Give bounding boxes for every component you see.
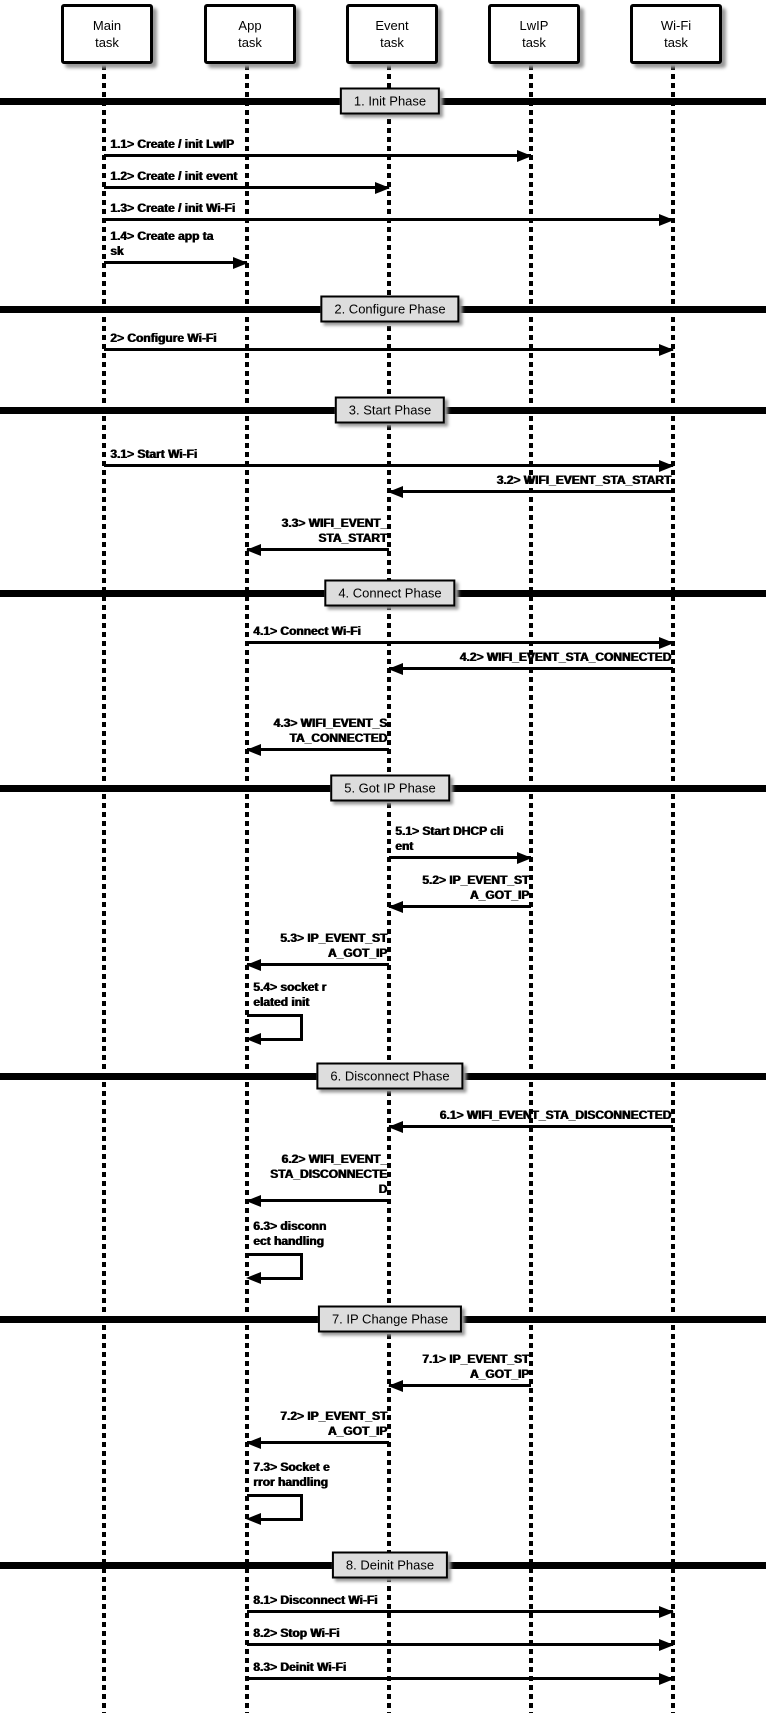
sequence-diagram: 1.1> Create / init LwIP 1.2> Create / in…	[0, 0, 768, 1713]
self-loop-line	[260, 1518, 303, 1521]
message-label: 1.3> Create / init Wi-Fi	[110, 201, 235, 216]
arrowhead-right-icon	[659, 460, 674, 472]
arrow-line	[104, 348, 673, 351]
phase-label-text: 7. IP Change Phase	[332, 1312, 448, 1327]
arrowhead-left-icon	[246, 1437, 261, 1449]
arrow-line	[104, 464, 673, 467]
message-label: 1.4> Create app ta sk	[110, 229, 213, 259]
message-label-line: STA_START	[281, 531, 387, 546]
phase-label-ip-change: 7. IP Change Phase	[318, 1306, 462, 1333]
message-3-2: 3.2> WIFI_EVENT_STA_START	[389, 490, 673, 493]
message-label: 5.2> IP_EVENT_ST A_GOT_IP	[422, 873, 529, 903]
arrowhead-left-icon	[246, 1272, 261, 1284]
arrowhead-left-icon	[388, 1380, 403, 1392]
phase-label-init: 1. Init Phase	[340, 88, 440, 115]
message-label-line: 4.3> WIFI_EVENT_S	[273, 716, 387, 731]
participant-name-line: App	[238, 17, 261, 34]
phase-label-configure: 2. Configure Phase	[320, 296, 459, 323]
participant-event-task: Event task	[346, 4, 438, 64]
message-label: 4.2> WIFI_EVENT_STA_CONNECTED	[460, 650, 672, 665]
message-6-3: 6.3> disconn ect handling	[247, 1253, 303, 1280]
participant-name-line: LwIP	[520, 17, 549, 34]
message-label-line: 1.1> Create / init LwIP	[110, 137, 234, 152]
phase-label-text: 2. Configure Phase	[334, 302, 445, 317]
arrow-line	[389, 490, 673, 493]
message-label-line: ect handling	[253, 1234, 326, 1249]
self-loop-line	[300, 1014, 303, 1041]
message-label-line: 2> Configure Wi-Fi	[110, 331, 216, 346]
arrowhead-left-icon	[246, 1195, 261, 1207]
arrow-line	[104, 261, 247, 264]
message-label-line: 5.2> IP_EVENT_ST	[422, 873, 529, 888]
message-4-2: 4.2> WIFI_EVENT_STA_CONNECTED	[389, 667, 673, 670]
arrowhead-right-icon	[233, 257, 248, 269]
message-6-2: 6.2> WIFI_EVENT_ STA_DISCONNECTE D	[247, 1199, 389, 1202]
message-4-3: 4.3> WIFI_EVENT_S TA_CONNECTED	[247, 748, 389, 751]
arrow-line	[104, 154, 531, 157]
participant-lwip-task: LwIP task	[488, 4, 580, 64]
message-label-line: A_GOT_IP	[280, 1424, 387, 1439]
lifeline-app-task	[245, 56, 249, 1713]
lifeline-lwip-task	[529, 56, 533, 1713]
phase-label-text: 5. Got IP Phase	[344, 781, 436, 796]
arrowhead-right-icon	[659, 214, 674, 226]
message-label-line: 5.4> socket r	[253, 980, 326, 995]
message-label: 8.2> Stop Wi-Fi	[253, 1626, 339, 1641]
participant-name-line: Wi-Fi	[661, 17, 691, 34]
phase-label-text: 6. Disconnect Phase	[330, 1069, 449, 1084]
arrowhead-left-icon	[246, 744, 261, 756]
message-1-3: 1.3> Create / init Wi-Fi	[104, 218, 673, 221]
message-label-line: 7.1> IP_EVENT_ST	[422, 1352, 529, 1367]
phase-label-text: 1. Init Phase	[354, 94, 426, 109]
self-loop-line	[260, 1038, 303, 1041]
message-label-line: 7.2> IP_EVENT_ST	[280, 1409, 387, 1424]
phase-label-deinit: 8. Deinit Phase	[332, 1552, 448, 1579]
message-4-1: 4.1> Connect Wi-Fi	[247, 641, 673, 644]
participant-name-line: Main	[93, 17, 121, 34]
message-label-line: 6.2> WIFI_EVENT_	[270, 1152, 387, 1167]
message-7-1: 7.1> IP_EVENT_ST A_GOT_IP	[389, 1384, 531, 1387]
arrow-line	[104, 218, 673, 221]
participant-main-task: Main task	[61, 4, 153, 64]
message-1-4: 1.4> Create app ta sk	[104, 261, 247, 264]
arrowhead-right-icon	[375, 182, 390, 194]
message-5-1: 5.1> Start DHCP cli ent	[389, 856, 531, 859]
message-5-3: 5.3> IP_EVENT_ST A_GOT_IP	[247, 963, 389, 966]
participant-name-line: task	[238, 34, 262, 51]
message-label-line: A_GOT_IP	[422, 1367, 529, 1382]
arrow-line	[247, 963, 389, 966]
message-label-line: 8.1> Disconnect Wi-Fi	[253, 1593, 377, 1608]
message-label-line: 1.2> Create / init event	[110, 169, 237, 184]
arrow-line	[247, 641, 673, 644]
self-loop-line	[300, 1253, 303, 1280]
arrow-line	[389, 856, 531, 859]
message-label: 2> Configure Wi-Fi	[110, 331, 216, 346]
message-3-1: 3.1> Start Wi-Fi	[104, 464, 673, 467]
arrowhead-right-icon	[517, 852, 532, 864]
phase-label-text: 3. Start Phase	[349, 403, 431, 418]
arrowhead-right-icon	[659, 1673, 674, 1685]
message-label-line: D	[270, 1182, 387, 1197]
arrow-line	[247, 548, 389, 551]
message-5-4: 5.4> socket r elated init	[247, 1014, 303, 1041]
message-label-line: rror handling	[253, 1475, 329, 1490]
self-loop-line	[260, 1277, 303, 1280]
arrowhead-left-icon	[388, 901, 403, 913]
message-label: 6.1> WIFI_EVENT_STA_DISCONNECTED	[440, 1108, 672, 1123]
message-label-line: 1.4> Create app ta	[110, 229, 213, 244]
message-label-line: 1.3> Create / init Wi-Fi	[110, 201, 235, 216]
message-7-3: 7.3> Socket e rror handling	[247, 1494, 303, 1521]
phase-label-text: 8. Deinit Phase	[346, 1558, 434, 1573]
self-loop-line	[247, 1253, 303, 1256]
message-label: 1.1> Create / init LwIP	[110, 137, 234, 152]
message-label: 5.3> IP_EVENT_ST A_GOT_IP	[280, 931, 387, 961]
message-label-line: sk	[110, 244, 213, 259]
message-label: 3.2> WIFI_EVENT_STA_START	[496, 473, 671, 488]
arrowhead-left-icon	[388, 1121, 403, 1133]
arrow-line	[104, 186, 389, 189]
message-label: 7.3> Socket e rror handling	[253, 1460, 329, 1490]
message-7-2: 7.2> IP_EVENT_ST A_GOT_IP	[247, 1441, 389, 1444]
arrow-line	[389, 1125, 673, 1128]
message-label: 8.3> Deinit Wi-Fi	[253, 1660, 346, 1675]
arrow-line	[389, 905, 531, 908]
arrow-line	[389, 1384, 531, 1387]
message-label-line: STA_DISCONNECTE	[270, 1167, 387, 1182]
self-loop-line	[300, 1494, 303, 1521]
message-label-line: 5.3> IP_EVENT_ST	[280, 931, 387, 946]
participant-name-line: task	[95, 34, 119, 51]
phase-label-start: 3. Start Phase	[335, 397, 445, 424]
self-loop-line	[247, 1014, 303, 1017]
message-label-line: 4.1> Connect Wi-Fi	[253, 624, 361, 639]
message-label-line: A_GOT_IP	[422, 888, 529, 903]
arrowhead-right-icon	[659, 1606, 674, 1618]
message-3-3: 3.3> WIFI_EVENT_ STA_START	[247, 548, 389, 551]
message-label: 3.1> Start Wi-Fi	[110, 447, 197, 462]
lifeline-main-task	[102, 56, 106, 1713]
message-label-line: 5.1> Start DHCP cli	[395, 824, 503, 839]
phase-label-text: 4. Connect Phase	[338, 586, 441, 601]
message-label: 4.1> Connect Wi-Fi	[253, 624, 361, 639]
message-label-line: 4.2> WIFI_EVENT_STA_CONNECTED	[460, 650, 672, 665]
arrow-line	[247, 1199, 389, 1202]
message-label-line: ent	[395, 839, 503, 854]
message-label: 1.2> Create / init event	[110, 169, 237, 184]
arrowhead-right-icon	[659, 344, 674, 356]
arrowhead-left-icon	[246, 544, 261, 556]
arrowhead-left-icon	[246, 1513, 261, 1525]
message-8-3: 8.3> Deinit Wi-Fi	[247, 1677, 673, 1680]
message-label: 5.4> socket r elated init	[253, 980, 326, 1010]
participant-name-line: task	[380, 34, 404, 51]
message-8-1: 8.1> Disconnect Wi-Fi	[247, 1610, 673, 1613]
arrow-line	[247, 1677, 673, 1680]
participant-name-line: task	[664, 34, 688, 51]
message-label: 6.2> WIFI_EVENT_ STA_DISCONNECTE D	[270, 1152, 387, 1197]
message-label: 4.3> WIFI_EVENT_S TA_CONNECTED	[273, 716, 387, 746]
arrowhead-left-icon	[388, 486, 403, 498]
arrowhead-right-icon	[517, 150, 532, 162]
message-label-line: 6.3> disconn	[253, 1219, 326, 1234]
message-label-line: 8.3> Deinit Wi-Fi	[253, 1660, 346, 1675]
message-label-line: A_GOT_IP	[280, 946, 387, 961]
message-label: 5.1> Start DHCP cli ent	[395, 824, 503, 854]
arrow-line	[247, 1643, 673, 1646]
message-1-2: 1.2> Create / init event	[104, 186, 389, 189]
participant-app-task: App task	[204, 4, 296, 64]
arrowhead-left-icon	[246, 1033, 261, 1045]
arrow-line	[389, 667, 673, 670]
message-6-1: 6.1> WIFI_EVENT_STA_DISCONNECTED	[389, 1125, 673, 1128]
message-label-line: 8.2> Stop Wi-Fi	[253, 1626, 339, 1641]
arrow-line	[247, 1610, 673, 1613]
phase-label-disconnect: 6. Disconnect Phase	[316, 1063, 463, 1090]
message-8-2: 8.2> Stop Wi-Fi	[247, 1643, 673, 1646]
message-label-line: TA_CONNECTED	[273, 731, 387, 746]
message-1-1: 1.1> Create / init LwIP	[104, 154, 531, 157]
message-label-line: 7.3> Socket e	[253, 1460, 329, 1475]
message-label: 8.1> Disconnect Wi-Fi	[253, 1593, 377, 1608]
phase-label-got-ip: 5. Got IP Phase	[330, 775, 450, 802]
arrowhead-left-icon	[388, 663, 403, 675]
participant-name-line: task	[522, 34, 546, 51]
arrowhead-right-icon	[659, 637, 674, 649]
arrowhead-right-icon	[659, 1639, 674, 1651]
arrowhead-left-icon	[246, 959, 261, 971]
message-label: 3.3> WIFI_EVENT_ STA_START	[281, 516, 387, 546]
message-label: 7.2> IP_EVENT_ST A_GOT_IP	[280, 1409, 387, 1439]
message-label-line: 3.1> Start Wi-Fi	[110, 447, 197, 462]
message-label-line: 6.1> WIFI_EVENT_STA_DISCONNECTED	[440, 1108, 672, 1123]
message-label-line: elated init	[253, 995, 326, 1010]
arrow-line	[247, 1441, 389, 1444]
phase-label-connect: 4. Connect Phase	[324, 580, 455, 607]
message-label: 7.1> IP_EVENT_ST A_GOT_IP	[422, 1352, 529, 1382]
participant-name-line: Event	[375, 17, 408, 34]
message-5-2: 5.2> IP_EVENT_ST A_GOT_IP	[389, 905, 531, 908]
participant-wifi-task: Wi-Fi task	[630, 4, 722, 64]
message-label: 6.3> disconn ect handling	[253, 1219, 326, 1249]
message-label-line: 3.2> WIFI_EVENT_STA_START	[496, 473, 671, 488]
message-2: 2> Configure Wi-Fi	[104, 348, 673, 351]
message-label-line: 3.3> WIFI_EVENT_	[281, 516, 387, 531]
arrow-line	[247, 748, 389, 751]
self-loop-line	[247, 1494, 303, 1497]
lifeline-wifi-task	[671, 56, 675, 1713]
